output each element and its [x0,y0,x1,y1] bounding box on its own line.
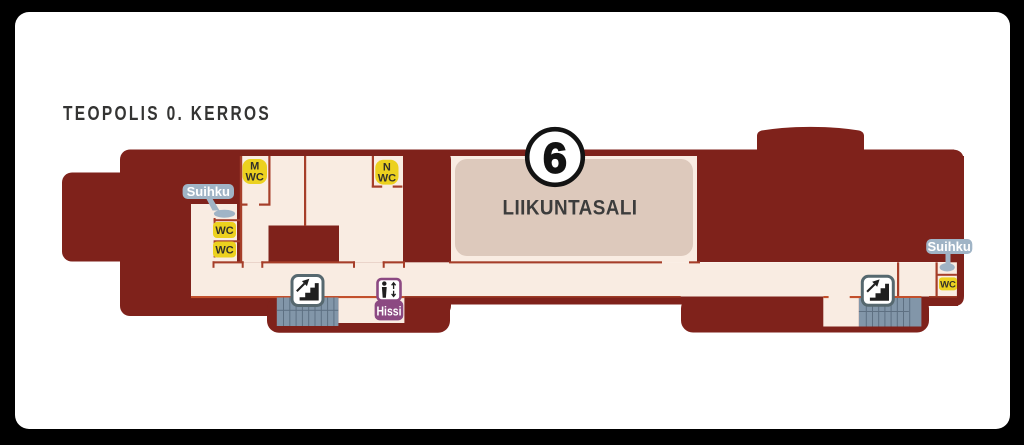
svg-text:WC: WC [246,172,264,184]
svg-text:6: 6 [543,135,567,183]
svg-text:Suihku: Suihku [187,184,230,199]
svg-text:WC: WC [940,279,956,290]
svg-text:WC: WC [378,172,396,184]
svg-text:LIIKUNTASALI: LIIKUNTASALI [503,197,638,220]
svg-text:Hissi: Hissi [377,305,402,319]
svg-text:WC: WC [215,225,233,237]
svg-text:TEOPOLIS 0. KERROS: TEOPOLIS 0. KERROS [63,103,271,125]
svg-text:Suihku: Suihku [928,239,971,254]
svg-text:WC: WC [215,245,233,257]
